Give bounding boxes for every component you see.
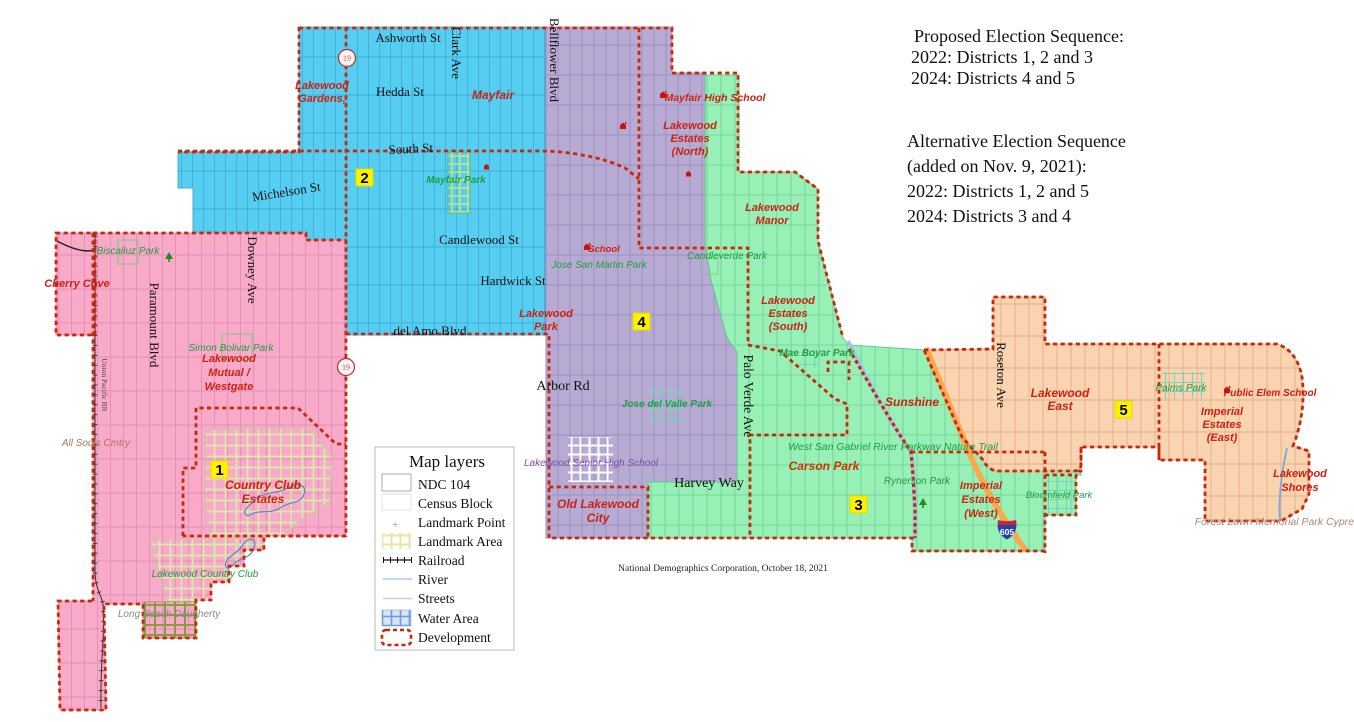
svg-text:Imperial: Imperial <box>960 480 1003 492</box>
svg-text:Alternative Election Sequence: Alternative Election Sequence <box>907 131 1126 151</box>
svg-text:Estates: Estates <box>242 492 285 506</box>
svg-text:Candleverde Park: Candleverde Park <box>687 251 768 262</box>
svg-text:Old Lakewood: Old Lakewood <box>557 497 640 511</box>
svg-text:Map layers: Map layers <box>409 452 485 471</box>
svg-text:Downey Ave: Downey Ave <box>245 236 260 304</box>
svg-text:School: School <box>588 244 620 255</box>
svg-text:Rynerson Park: Rynerson Park <box>884 476 951 487</box>
svg-text:NDC 104: NDC 104 <box>418 477 470 492</box>
svg-text:Mayfair: Mayfair <box>472 88 515 102</box>
svg-text:Lakewood: Lakewood <box>1273 468 1327 480</box>
svg-text:Lakewood Country Club: Lakewood Country Club <box>152 569 259 580</box>
svg-text:1: 1 <box>215 462 223 479</box>
svg-text:Hardwick St: Hardwick St <box>480 273 546 288</box>
svg-text:East: East <box>1047 399 1073 413</box>
svg-text:Lakewood Senior High School: Lakewood Senior High School <box>524 458 659 469</box>
svg-text:Union Pacific RR: Union Pacific RR <box>100 358 109 411</box>
svg-text:Landmark Area: Landmark Area <box>418 534 502 549</box>
svg-text:Bloomfield Park: Bloomfield Park <box>1026 490 1094 501</box>
svg-text:Development: Development <box>418 630 491 645</box>
svg-text:Landmark Point: Landmark Point <box>418 515 506 530</box>
svg-text:Simon Bolivar Park: Simon Bolivar Park <box>188 343 274 354</box>
svg-text:Arbor Rd: Arbor Rd <box>536 379 589 394</box>
svg-text:5: 5 <box>1119 402 1127 419</box>
svg-text:Gardens,: Gardens, <box>298 93 346 105</box>
svg-text:2024: Districts 3 and 4: 2024: Districts 3 and 4 <box>907 206 1071 226</box>
svg-text:City: City <box>587 511 611 525</box>
svg-text:Palo Verde Ave: Palo Verde Ave <box>741 355 756 438</box>
svg-text:Shores: Shores <box>1281 482 1318 494</box>
svg-text:Long Beach Daugherty: Long Beach Daugherty <box>118 609 221 620</box>
svg-text:All Souls Cmtry: All Souls Cmtry <box>61 438 131 449</box>
svg-text:del Amo Blvd: del Amo Blvd <box>394 323 467 338</box>
svg-text:Mutual /: Mutual / <box>208 367 251 379</box>
svg-text:Lakewood: Lakewood <box>761 295 815 307</box>
svg-text:Lakewood: Lakewood <box>202 353 256 365</box>
svg-text:River: River <box>418 572 448 587</box>
svg-text:National Demographics Corporat: National Demographics Corporation, Octob… <box>618 564 828 574</box>
svg-text:Ashworth St: Ashworth St <box>375 30 441 45</box>
svg-text:Lakewood: Lakewood <box>295 80 349 92</box>
svg-text:(added on Nov. 9, 2021):: (added on Nov. 9, 2021): <box>907 156 1087 177</box>
svg-text:Westgate: Westgate <box>205 381 254 393</box>
svg-text:Proposed Election Sequence:: Proposed Election Sequence: <box>914 26 1124 46</box>
svg-text:605: 605 <box>1000 527 1014 537</box>
svg-text:3: 3 <box>854 497 862 514</box>
svg-text:Railroad: Railroad <box>418 553 465 568</box>
svg-text:Cherry Cove: Cherry Cove <box>44 278 109 290</box>
svg-text:2022: Districts 1, 2 and 5: 2022: Districts 1, 2 and 5 <box>907 181 1089 201</box>
svg-text:Carson Park: Carson Park <box>789 459 861 473</box>
svg-text:(East): (East) <box>1207 432 1238 444</box>
svg-text:Estates: Estates <box>670 133 709 145</box>
svg-text:Imperial: Imperial <box>1201 406 1244 418</box>
svg-text:South St: South St <box>388 140 434 157</box>
svg-text:Lakewood: Lakewood <box>663 120 717 132</box>
svg-text:Candlewood St: Candlewood St <box>439 232 519 247</box>
svg-text:19: 19 <box>343 54 351 63</box>
svg-text:West San Gabriel River Parkway: West San Gabriel River Parkway Nature Tr… <box>788 441 998 453</box>
svg-text:Lakewood: Lakewood <box>1031 386 1090 400</box>
svg-text:Public Elem School: Public Elem School <box>1224 388 1317 399</box>
svg-text:Sunshine: Sunshine <box>885 395 939 409</box>
svg-text:Lakewood: Lakewood <box>745 202 799 214</box>
svg-text:2022: Districts 1, 2 and 3: 2022: Districts 1, 2 and 3 <box>911 47 1093 67</box>
svg-text:Mayfair High School: Mayfair High School <box>665 92 767 104</box>
svg-text:Jose del Valle Park: Jose del Valle Park <box>622 399 713 410</box>
svg-text:Country Club: Country Club <box>225 478 301 492</box>
svg-text:2024: Districts 4 and 5: 2024: Districts 4 and 5 <box>911 68 1075 88</box>
svg-text:Streets: Streets <box>418 591 455 606</box>
svg-text:Paramount Blvd: Paramount Blvd <box>147 283 162 368</box>
svg-text:Bellflower Blvd: Bellflower Blvd <box>547 18 562 103</box>
svg-text:4: 4 <box>637 314 646 331</box>
svg-text:+: + <box>392 519 398 531</box>
svg-text:Water Area: Water Area <box>418 611 479 626</box>
svg-text:Hedda St: Hedda St <box>376 84 424 99</box>
svg-text:2: 2 <box>360 170 368 187</box>
svg-text:Mae Boyar Park: Mae Boyar Park <box>779 348 854 359</box>
svg-text:(North): (North) <box>672 146 709 158</box>
svg-text:Jose San Martin Park: Jose San Martin Park <box>550 260 648 271</box>
svg-text:(South): (South) <box>769 321 808 333</box>
svg-text:Estates: Estates <box>768 308 807 320</box>
svg-text:19: 19 <box>342 363 350 372</box>
svg-text:Roseton Ave: Roseton Ave <box>994 342 1009 408</box>
svg-text:Estates: Estates <box>1202 419 1241 431</box>
svg-text:Census Block: Census Block <box>418 496 493 511</box>
svg-text:Forest Lawn Memorial Park Cypr: Forest Lawn Memorial Park Cypres <box>1195 516 1354 528</box>
svg-text:Lakewood: Lakewood <box>519 308 573 320</box>
svg-text:Biscailuz Park: Biscailuz Park <box>97 246 161 257</box>
svg-text:Park: Park <box>534 321 559 333</box>
svg-text:Mayfair Park: Mayfair Park <box>426 175 486 186</box>
svg-text:Palms Park: Palms Park <box>1155 383 1207 394</box>
svg-text:Manor: Manor <box>756 215 790 227</box>
svg-text:Clark Ave: Clark Ave <box>449 27 464 79</box>
svg-text:(West): (West) <box>964 508 998 520</box>
svg-text:Harvey Way: Harvey Way <box>674 476 744 491</box>
svg-text:Estates: Estates <box>961 494 1000 506</box>
